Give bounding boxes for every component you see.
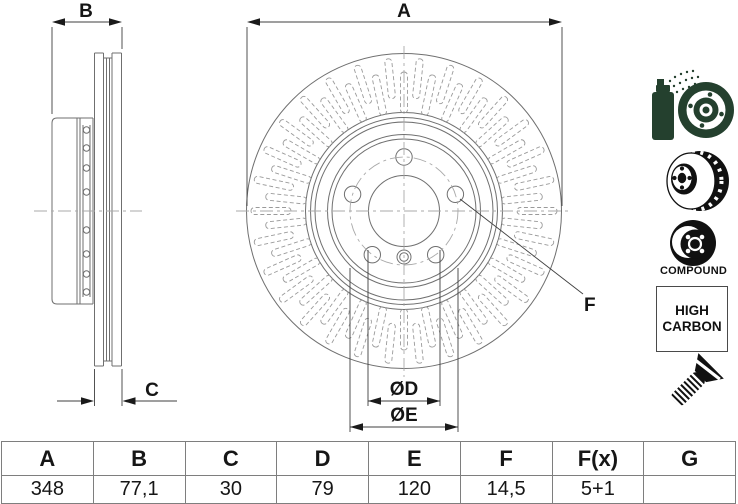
hat-flange-hole: [83, 127, 89, 133]
vent-slot: [263, 254, 302, 277]
vent-slot: [487, 257, 526, 284]
technical-drawing: A B C ØD ØE F: [0, 0, 738, 441]
vent-slot: [271, 238, 312, 257]
table-header-cell-e: E: [369, 442, 461, 476]
dim-d-arrow-right: [427, 397, 440, 404]
vent-slot: [514, 231, 555, 246]
table-header-cell-a: A: [2, 442, 94, 476]
dim-b-arrow-left: [52, 18, 65, 25]
vent-slot: [299, 293, 331, 327]
vent-slot: [474, 115, 509, 148]
spray-can-shoulder: [656, 85, 670, 92]
table-value-cell-fx: 5+1: [552, 476, 644, 504]
table-header-cell-fx: F(x): [552, 442, 644, 476]
vent-slot: [459, 288, 489, 325]
vent-slot: [324, 77, 350, 115]
vent-slot: [436, 64, 455, 104]
vent-slot: [506, 254, 545, 277]
hat-flange-hole: [83, 189, 89, 195]
vent-slot: [372, 306, 387, 348]
vent-slot: [514, 176, 555, 191]
spray-can-body: [652, 92, 674, 140]
vent-slot: [271, 165, 312, 184]
table-header-cell-d: D: [277, 442, 369, 476]
hat-flange-hole: [83, 289, 89, 295]
vent-slot: [344, 299, 367, 339]
vent-slot: [493, 275, 529, 304]
vent-slot: [436, 317, 455, 357]
hat-flange-hole: [83, 251, 89, 257]
table-value-cell-b: 77,1: [93, 476, 185, 504]
cross-section-view: [52, 53, 122, 366]
hat-flange-hole: [83, 271, 89, 277]
table-value-cell-d: 79: [277, 476, 369, 504]
vent-slot: [298, 274, 333, 307]
vent-slot: [493, 118, 529, 147]
table-header-cell-g: G: [644, 442, 736, 476]
vent-slot: [477, 293, 509, 327]
vent-slot: [487, 138, 526, 165]
vent-slot: [501, 193, 543, 204]
friction-plates-outline: [95, 53, 122, 366]
dim-c-arrow-right: [123, 397, 136, 404]
dim-label-d: ØD: [390, 379, 419, 400]
vent-slot: [254, 176, 295, 191]
high-carbon-line1: HIGH: [675, 303, 709, 319]
dim-c-arrow-left: [81, 397, 94, 404]
dim-a-arrow-right: [549, 18, 562, 25]
table-value-cell-a: 348: [2, 476, 94, 504]
high-carbon-line2: CARBON: [662, 319, 721, 335]
table-value-cell-c: 30: [185, 476, 277, 504]
countersunk-screw-icon: [662, 353, 724, 415]
vent-slot: [265, 193, 307, 204]
vent-slot: [265, 218, 307, 229]
compound-badge-label: COMPOUND: [646, 265, 738, 277]
dimension-table: A B C D E F F(x) G 348 77,1 30 79 120 14…: [1, 441, 736, 504]
coating-spray-icon: [652, 70, 734, 140]
centerline-paths: [34, 46, 572, 377]
vent-slot: [263, 146, 302, 169]
dim-b-arrow-right: [109, 18, 122, 25]
vent-slot: [324, 307, 350, 345]
vent-slot: [457, 77, 483, 115]
dim-d-arrow-left: [368, 397, 381, 404]
vent-slot: [412, 58, 423, 99]
dim-f-leader-line: [460, 199, 583, 294]
vent-slot: [421, 306, 436, 348]
table-header-cell-f: F: [460, 442, 552, 476]
vent-slot: [282, 257, 321, 284]
vent-slot: [353, 64, 372, 104]
bolt-hole: [364, 247, 380, 263]
vent-slot: [372, 74, 387, 116]
table-value-row: 348 77,1 30 79 120 14,5 5+1: [2, 476, 736, 504]
centerlines: [34, 46, 572, 377]
vent-slot: [441, 83, 464, 123]
hat-flange-hole: [83, 165, 89, 171]
table-header-cell-b: B: [93, 442, 185, 476]
coated-disc-face: [678, 82, 734, 138]
spray-can-nozzle: [657, 79, 664, 85]
compound-disc-icon: [670, 220, 716, 266]
vent-slot: [501, 218, 543, 229]
dim-a-line: [247, 22, 562, 206]
hat-flange-hole: [83, 145, 89, 151]
dim-a-arrow-left: [247, 18, 260, 25]
vent-slot: [441, 299, 464, 339]
vent-slot: [496, 165, 537, 184]
vent-slot: [353, 317, 372, 357]
dim-c-line: [57, 369, 177, 406]
dim-e-arrow-right: [445, 423, 458, 430]
table-header-cell-c: C: [185, 442, 277, 476]
vent-slot: [412, 323, 423, 364]
dim-label-b: B: [79, 1, 93, 22]
table-value-cell-f: 14,5: [460, 476, 552, 504]
vent-slot: [477, 95, 509, 129]
vent-slot: [457, 307, 483, 345]
vent-slot: [385, 323, 396, 364]
dim-label-c: C: [145, 380, 159, 401]
dim-label-e: ØE: [390, 405, 417, 426]
vent-slot: [506, 146, 545, 169]
vent-slot: [278, 118, 314, 147]
hat-flange-hole: [83, 227, 89, 233]
vent-slot: [344, 83, 367, 123]
vent-slot: [254, 231, 295, 246]
dim-label-f: F: [584, 295, 596, 316]
vent-slot: [299, 95, 331, 129]
table-header-row: A B C D E F F(x) G: [2, 442, 736, 476]
dim-e-arrow-left: [350, 423, 363, 430]
table-value-cell-g: [644, 476, 736, 504]
vent-slot: [385, 58, 396, 99]
vent-slot: [319, 96, 349, 133]
vent-slot: [282, 138, 321, 165]
vent-slot: [421, 74, 436, 116]
dim-label-a: A: [397, 1, 411, 22]
brake-disc-spec-sheet: A B C ØD ØE F: [0, 0, 738, 504]
vented-disc-icon: [667, 151, 729, 211]
vent-slot: [474, 274, 509, 307]
vent-slot: [278, 275, 314, 304]
high-carbon-badge: HIGH CARBON: [656, 286, 728, 352]
table-value-cell-e: 120: [369, 476, 461, 504]
icon-column: [652, 70, 734, 415]
vent-slot: [298, 115, 333, 148]
